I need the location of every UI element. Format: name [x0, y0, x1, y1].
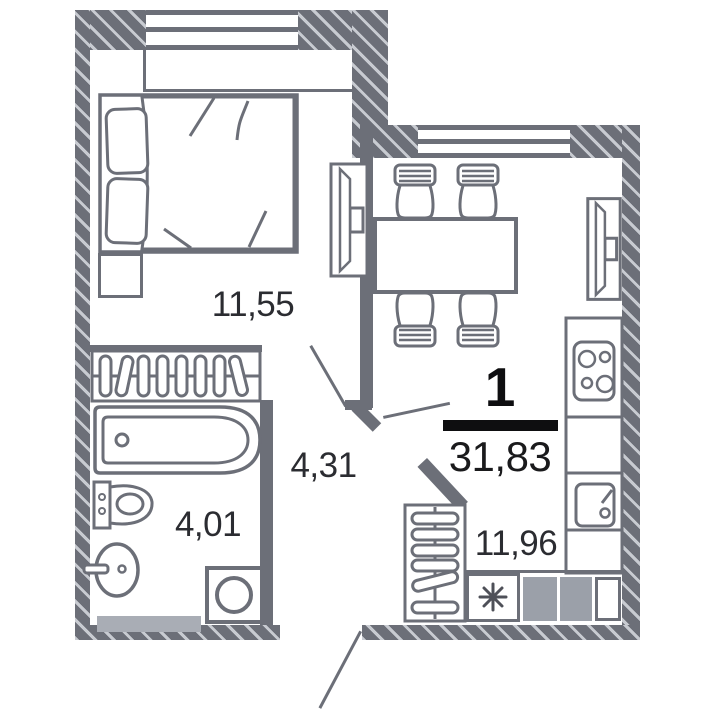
bathtub-icon: [92, 404, 264, 476]
bed-icon: [98, 93, 300, 255]
kitchen-door-leaf: [383, 402, 450, 419]
wardrobe-hangers-icon: [90, 350, 263, 404]
floor-plan: 11,55 4,31 4,01 11,96 1 31,83: [0, 0, 720, 720]
kitchen-unit-fill-b: [560, 577, 592, 621]
chair-icon: [390, 163, 440, 220]
nightstand: [98, 253, 143, 298]
chair-icon: [453, 291, 503, 348]
toilet-icon: [92, 480, 164, 530]
bathroom-cabinet-fill: [97, 616, 201, 632]
chair-icon: [390, 291, 440, 348]
unit-divider-bar: [443, 420, 558, 431]
entry-door-leaf: [319, 631, 362, 709]
kitchen-unit-fill-a: [523, 577, 557, 621]
washing-machine-icon: [205, 566, 264, 624]
washbasin-icon: [84, 541, 142, 599]
wall-bottom-right: [362, 625, 640, 640]
chair-icon: [453, 163, 503, 220]
unit-number: 1: [460, 355, 540, 419]
bedroom-area-label: 11,55: [190, 285, 316, 325]
wall-bedroom-door-jamb: [345, 400, 372, 410]
hallway-area-label: 4,31: [276, 446, 371, 486]
dining-table: [373, 217, 518, 294]
stove-icon: [574, 342, 614, 400]
kitchen-window: [418, 125, 570, 158]
bedroom-door-leaf: [309, 345, 347, 407]
kitchen-sink-icon: [576, 484, 614, 526]
bathroom-area-label: 4,01: [163, 505, 253, 545]
tv-icon-kitchen: [586, 192, 622, 306]
total-area-label: 31,83: [435, 433, 565, 481]
kitchen-area-label: 11,96: [456, 524, 576, 564]
bedroom-window: [146, 10, 298, 50]
kitchen-unit-cell: [595, 577, 621, 621]
wall-right: [622, 125, 640, 640]
asterisk-icon: [479, 583, 507, 611]
window-sill-ledge: [143, 50, 352, 92]
tv-icon-bedroom: [329, 162, 369, 278]
